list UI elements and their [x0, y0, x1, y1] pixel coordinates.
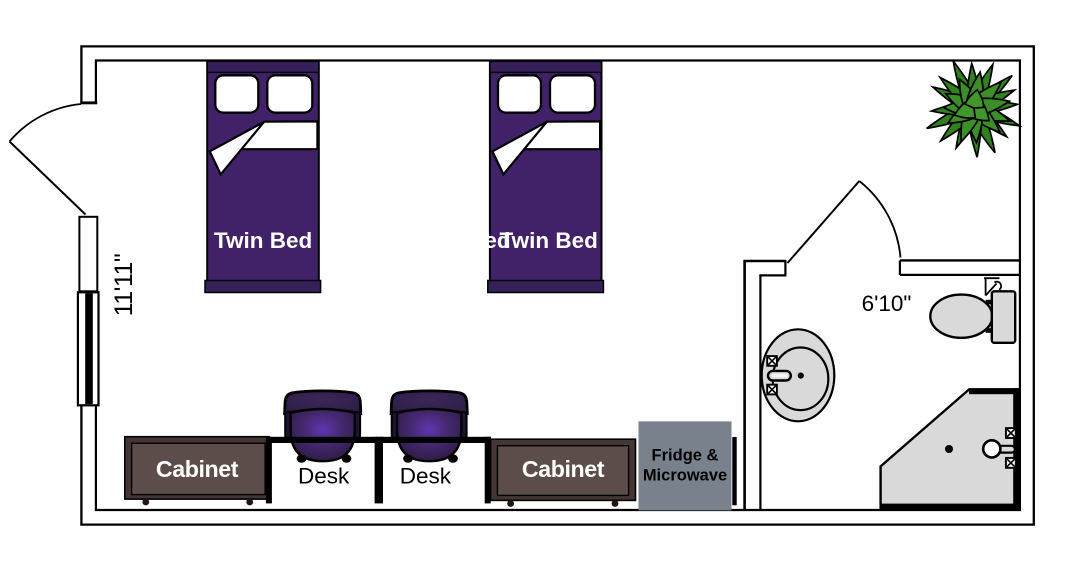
svg-text:6'10": 6'10"	[862, 291, 912, 316]
svg-text:Fridge &: Fridge &	[652, 446, 719, 464]
svg-text:Cabinet: Cabinet	[522, 456, 605, 482]
svg-text:Desk: Desk	[298, 464, 350, 489]
svg-text:Twin Bed: Twin Bed	[500, 228, 598, 253]
svg-text:Twin Bed: Twin Bed	[412, 228, 510, 253]
svg-text:Microwave: Microwave	[643, 467, 727, 485]
svg-text:11'11": 11'11"	[110, 254, 138, 317]
svg-text:Cabinet: Cabinet	[156, 456, 239, 482]
svg-text:Desk: Desk	[400, 464, 452, 489]
svg-text:Twin Bed: Twin Bed	[214, 228, 312, 253]
